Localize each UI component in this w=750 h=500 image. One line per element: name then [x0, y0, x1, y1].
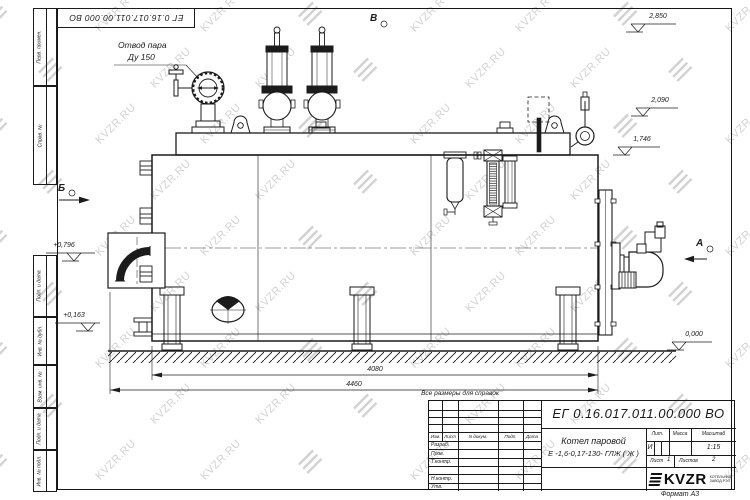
format-label: Формат А3 — [630, 491, 730, 498]
product-name-line2: Е -1,6-0,17-130- ГЛЖ ( Ж ) — [541, 449, 646, 458]
company-logo: KVZR КОТЕЛЬНЫЙ ЗАВОД РЭП — [646, 467, 736, 491]
title-block: ЕГ 0.16.017.011.00.000 ВО Изм. Лист N до… — [428, 400, 735, 490]
side-cell-inv-dubl: Инв. № дубл. — [33, 317, 57, 365]
logo-text: KVZR — [664, 471, 707, 488]
row-prov: Пров. — [431, 451, 444, 457]
row-razrab: Разраб. — [431, 442, 449, 448]
sheets-label: Листов — [679, 458, 698, 464]
scale-header: Масштаб — [691, 431, 736, 437]
lit-value: И — [646, 444, 654, 451]
sheet-label: Лист — [650, 458, 663, 464]
col-izm: Изм. — [429, 434, 442, 439]
side-cell-inv-podl: Инв. № подл. — [33, 450, 57, 492]
drawing-sheet: KVZR.RUKVZR.RUKVZR.RUKVZR.RUKVZR.RUKVZR.… — [0, 0, 750, 500]
top-stamp-doc-number: ЕГ 0.16.017.011.00.000 ВО — [69, 13, 183, 23]
side-cell-sprav-no: Справ. № — [33, 86, 57, 185]
side-cell-podp-data-1: Подп. и дата — [33, 255, 57, 317]
doc-number: ЕГ 0.16.017.011.00.000 ВО — [541, 406, 736, 421]
col-podp: Подп. — [498, 434, 523, 439]
top-stamp-rotated: ЕГ 0.16.017.011.00.000 ВО — [57, 8, 195, 28]
col-data: Дата — [523, 434, 541, 439]
product-name-line1: Котел паровой — [541, 436, 646, 446]
sheets-value: 2 — [712, 457, 715, 463]
side-cell-vzam-inv: Взам. инв. № — [33, 365, 57, 408]
spring-coil-icon — [648, 472, 662, 486]
row-utv: Утв. — [431, 484, 442, 490]
row-tkontr: Т.контр. — [431, 459, 451, 465]
side-cell-podp-data-2: Подп. и дата — [33, 408, 57, 450]
scale-value: 1:15 — [691, 444, 736, 451]
col-list: Лист — [442, 434, 458, 439]
side-cell-perv-primen: Перв. примен. — [33, 8, 57, 86]
sheet-value: 1 — [667, 457, 670, 463]
col-ndokum: N докум. — [458, 434, 498, 439]
lit-header: Лит. — [646, 431, 669, 437]
mass-header: Масса — [669, 431, 691, 437]
row-nkontr: Н.контр. — [431, 476, 452, 482]
logo-sub2: ЗАВОД РЭП — [710, 479, 733, 483]
